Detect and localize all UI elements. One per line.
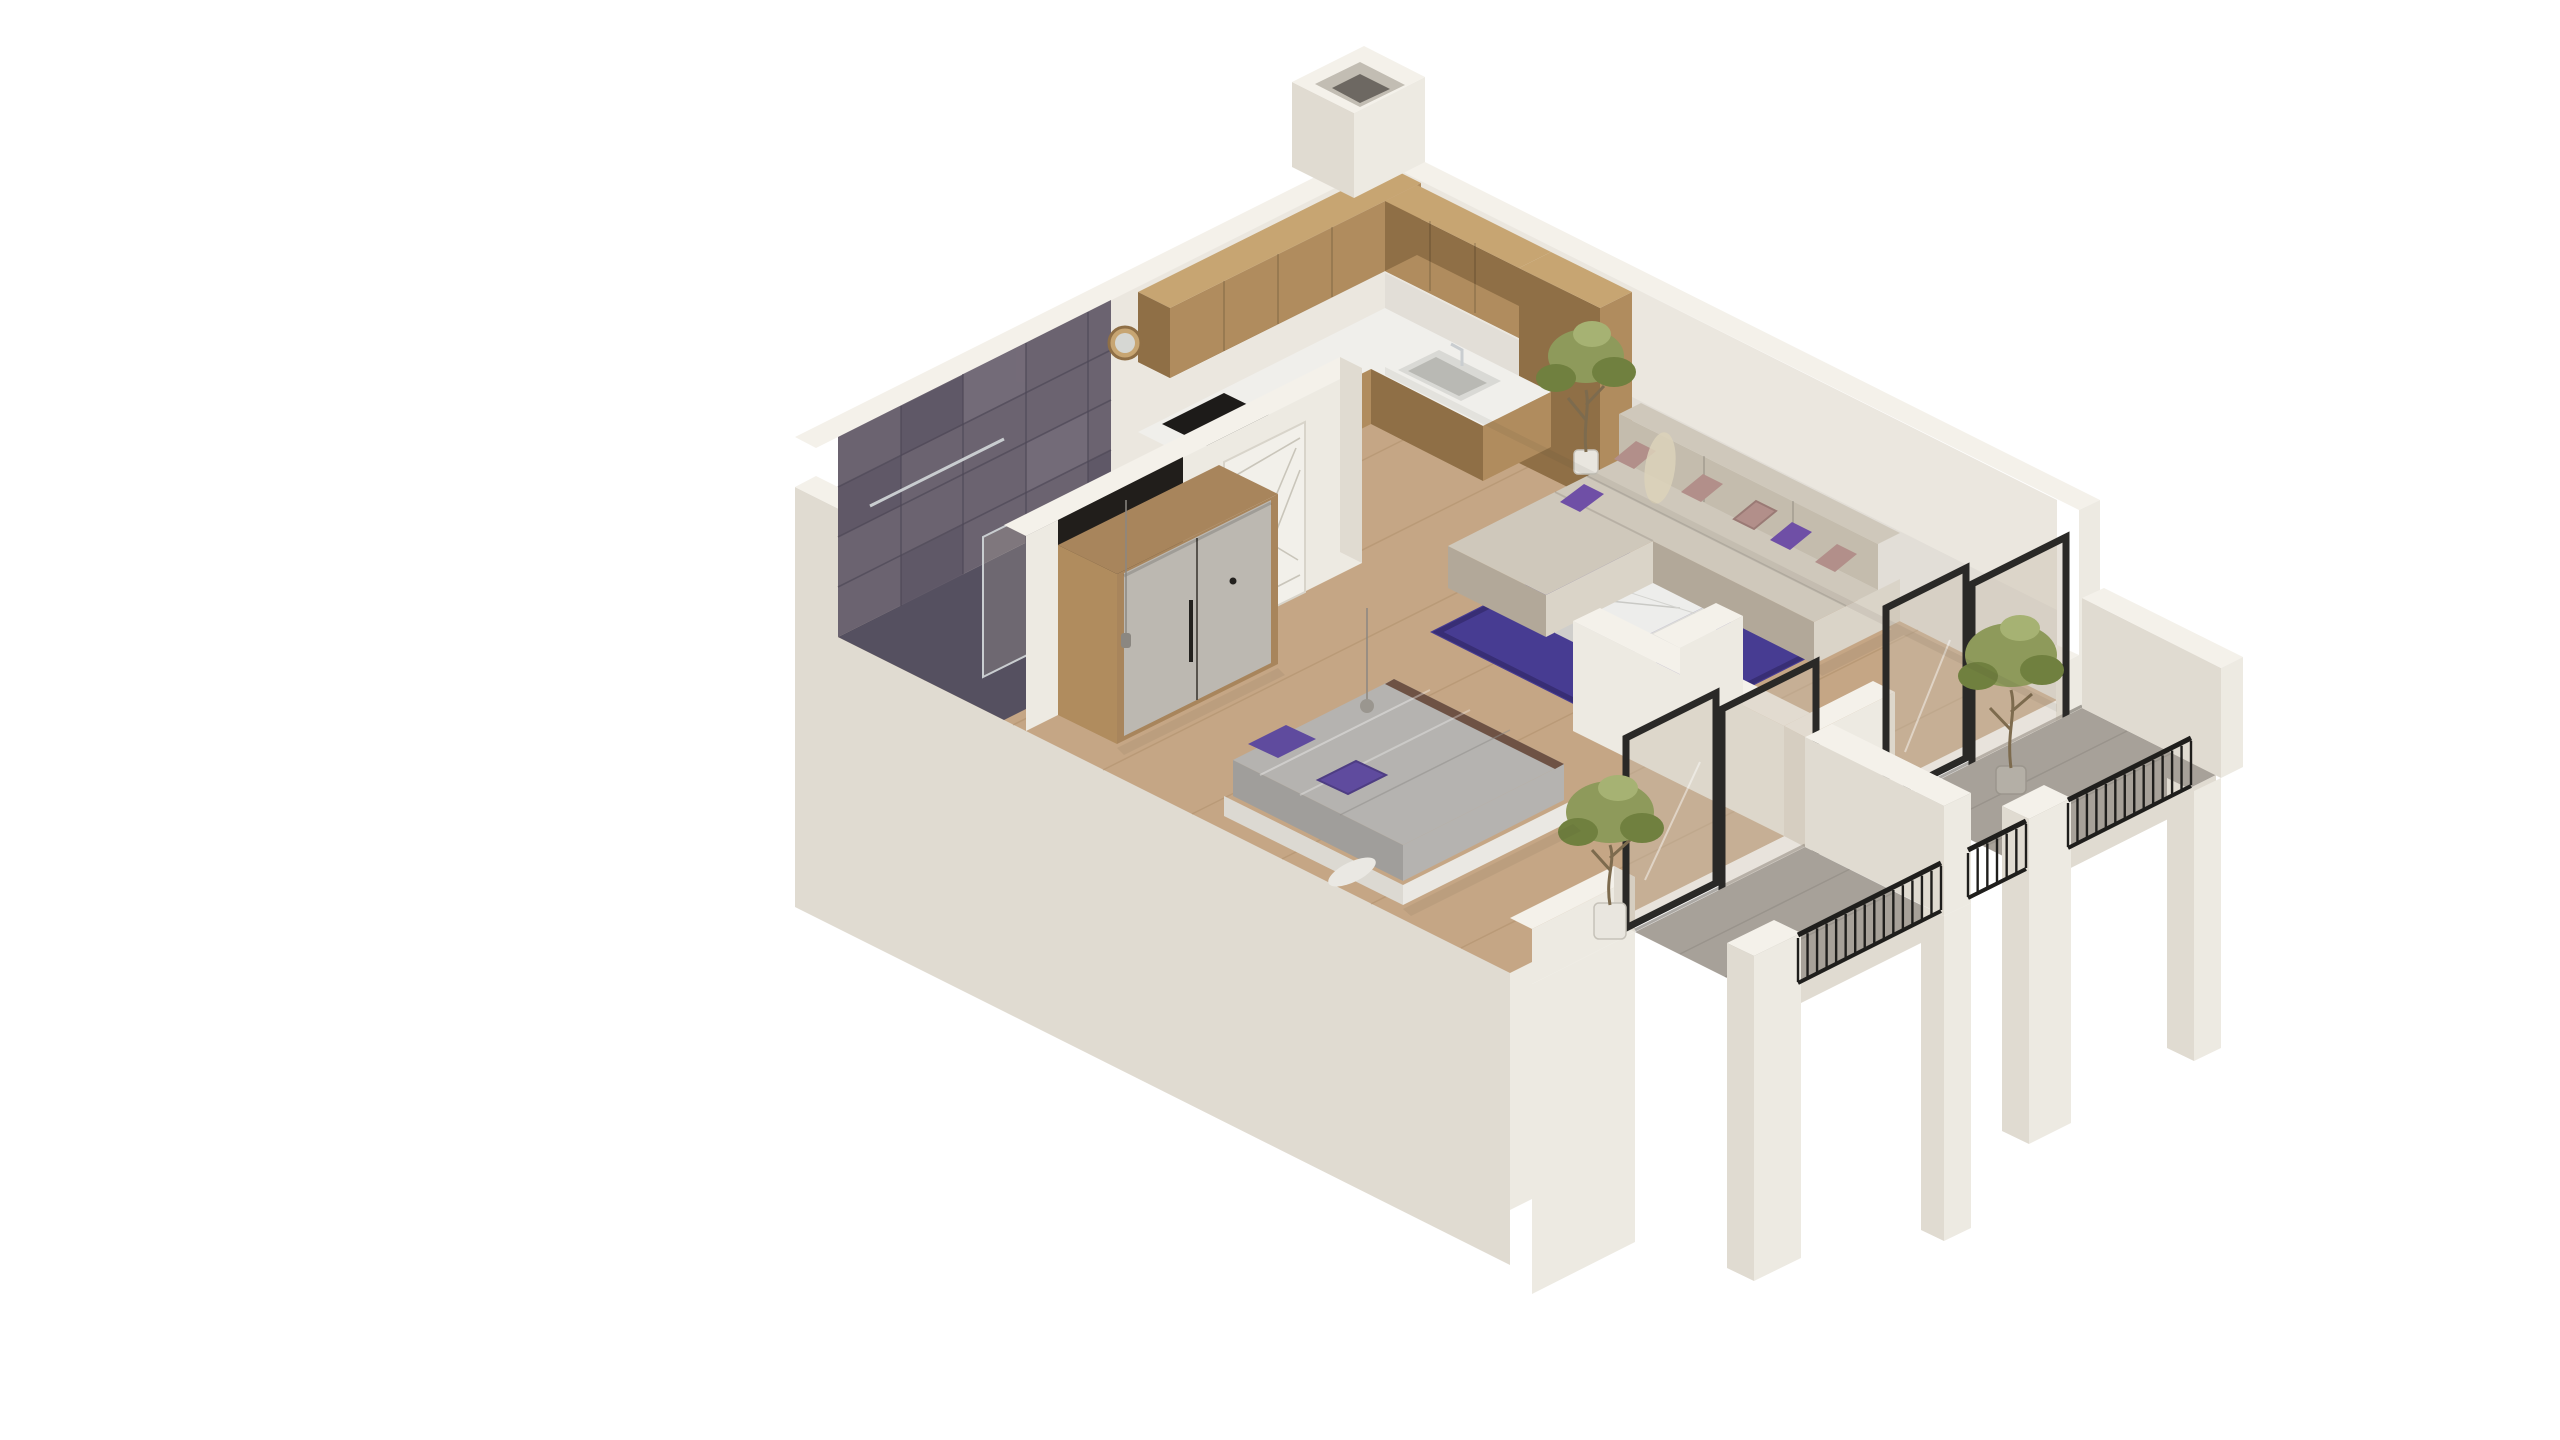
tree-pot-white	[1594, 903, 1626, 939]
between-wall-column	[1944, 903, 1971, 1241]
right-pier-side	[2167, 778, 2194, 1061]
tree-foliage	[1598, 775, 1638, 801]
plant-foliage	[1536, 364, 1576, 392]
tree-foliage	[2020, 655, 2064, 685]
plant-foliage	[1573, 321, 1611, 347]
wardrobe-knob	[1230, 578, 1237, 585]
tree-pot-grey	[1996, 766, 2026, 794]
round-mirror-glass	[1115, 333, 1135, 353]
right-pier-face	[2194, 778, 2221, 1061]
pendant-sphere	[1360, 699, 1374, 713]
render-canvas	[0, 0, 2560, 1440]
tree-foliage	[1620, 813, 1664, 843]
wardrobe-side	[1058, 545, 1117, 744]
plant-foliage	[1592, 357, 1636, 387]
pier-side	[1727, 943, 1754, 1281]
pendant-bulb	[1121, 633, 1131, 648]
apartment-isometric-render	[0, 0, 2560, 1440]
between-wall-column-side	[1921, 905, 1944, 1241]
partition-end-cap	[1340, 357, 1362, 563]
corner-mass	[1532, 932, 1635, 1294]
pier-face	[1754, 933, 1801, 1281]
pier-face	[2029, 798, 2071, 1144]
right-parapet-end	[2221, 657, 2243, 778]
tree-foliage	[2000, 615, 2040, 641]
